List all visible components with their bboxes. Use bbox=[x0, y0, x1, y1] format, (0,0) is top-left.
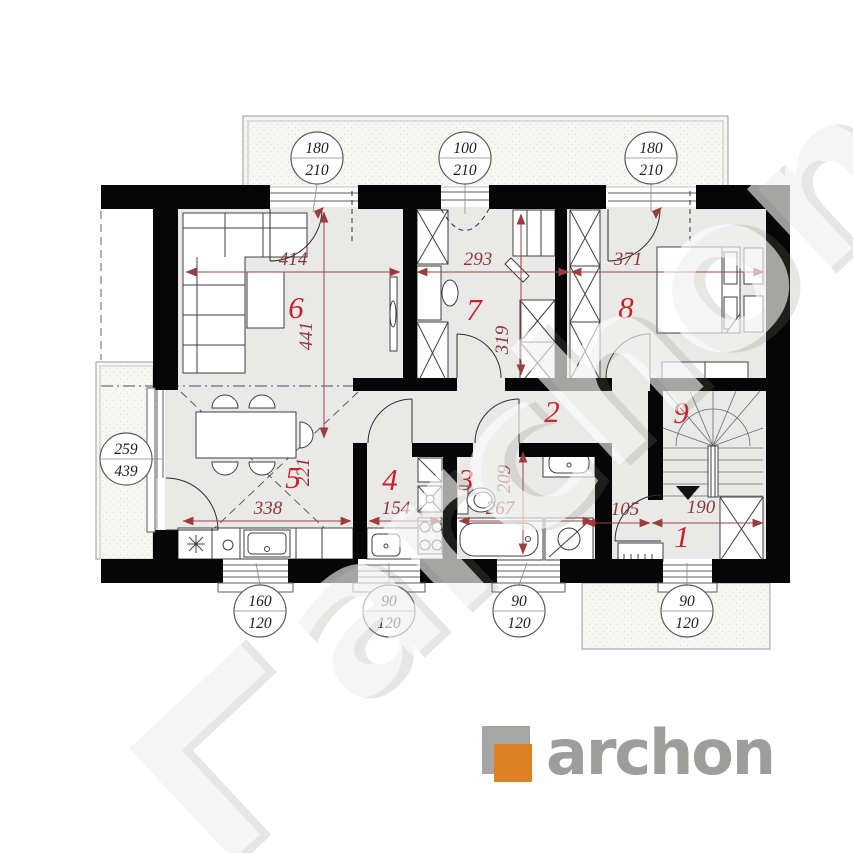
dim-190: 190 bbox=[687, 497, 716, 518]
room-number-1: 1 bbox=[674, 519, 690, 554]
svg-text:180: 180 bbox=[305, 140, 329, 157]
logo-text: archon bbox=[546, 716, 774, 789]
svg-text:100: 100 bbox=[453, 140, 477, 157]
floor-plan-page: 414 293 371 441 319 338 221 154 267 209 … bbox=[0, 0, 853, 853]
window-tag-180-210-a: 180 210 bbox=[291, 132, 343, 184]
bench-radiator bbox=[618, 543, 663, 561]
dim-441: 441 bbox=[296, 322, 317, 351]
floor-plan-drawing: 414 293 371 441 319 338 221 154 267 209 … bbox=[0, 0, 853, 853]
svg-text:210: 210 bbox=[305, 162, 329, 179]
wardrobe-entry bbox=[720, 497, 763, 561]
coffee-table bbox=[247, 272, 284, 328]
svg-text:180: 180 bbox=[639, 140, 663, 157]
svg-text:259: 259 bbox=[114, 441, 138, 458]
dim-414: 414 bbox=[279, 249, 308, 270]
window-tag-90-120-c: 90 120 bbox=[661, 585, 713, 637]
svg-text:210: 210 bbox=[453, 162, 477, 179]
desk-chair bbox=[442, 280, 458, 306]
svg-text:439: 439 bbox=[114, 463, 138, 480]
dim-293: 293 bbox=[464, 249, 493, 270]
window-tag-259-439: 259 439 bbox=[100, 433, 152, 485]
svg-text:90: 90 bbox=[679, 593, 695, 610]
room-number-5: 5 bbox=[285, 460, 301, 495]
hob-symbol bbox=[187, 535, 205, 553]
desk bbox=[417, 266, 441, 320]
archon-logo: archon bbox=[482, 716, 774, 789]
room-number-7: 7 bbox=[466, 292, 483, 327]
svg-text:120: 120 bbox=[675, 615, 699, 632]
room-number-6: 6 bbox=[288, 290, 304, 325]
logo-orange-square bbox=[494, 744, 532, 782]
window-tag-100-210: 100 210 bbox=[439, 132, 491, 184]
tv-panel bbox=[390, 277, 397, 351]
